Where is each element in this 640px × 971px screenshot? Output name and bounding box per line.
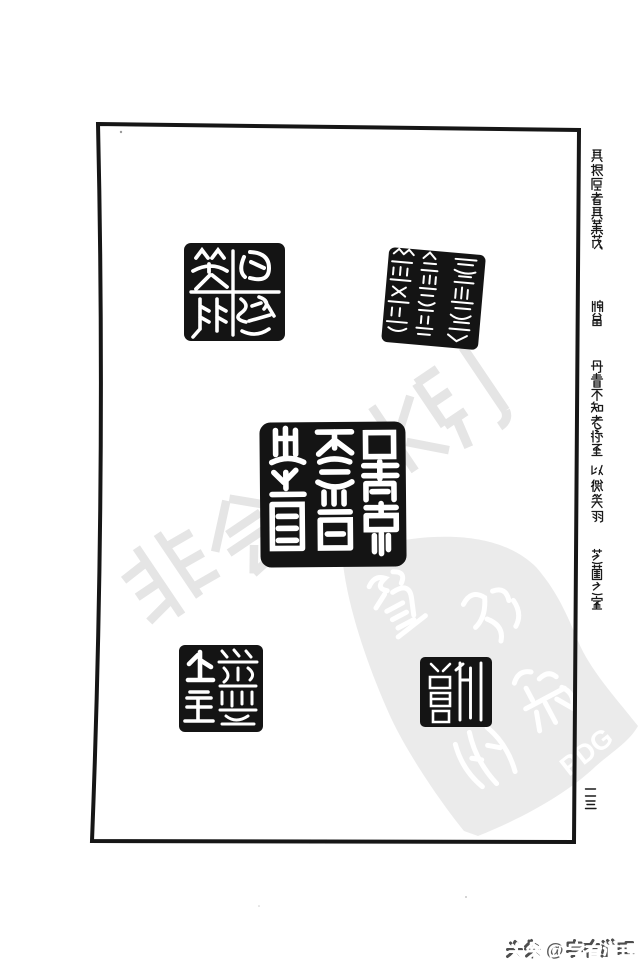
svg-text:@: @ — [548, 942, 566, 962]
